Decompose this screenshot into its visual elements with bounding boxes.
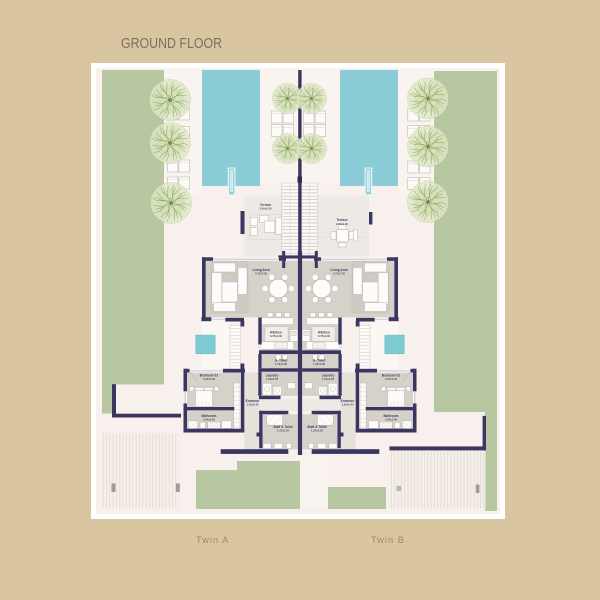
svg-text:Staff & Toilet: Staff & Toilet [273, 425, 293, 429]
svg-text:Staff & Toilet: Staff & Toilet [307, 425, 327, 429]
svg-text:G. Toilet: G. Toilet [275, 358, 288, 362]
svg-text:Laundry: Laundry [266, 373, 279, 377]
svg-text:Kitchen: Kitchen [270, 330, 282, 334]
svg-text:Bathroom: Bathroom [201, 414, 216, 418]
svg-text:1.20x2.55: 1.20x2.55 [311, 429, 323, 433]
svg-text:Bathroom: Bathroom [383, 414, 398, 418]
svg-text:GROUND FLOOR: GROUND FLOOR [121, 36, 222, 52]
svg-text:Laundry: Laundry [322, 373, 335, 377]
svg-text:Terrace: Terrace [336, 218, 348, 222]
svg-text:5.20x4.90: 5.20x4.90 [203, 377, 215, 381]
svg-text:G. Toilet: G. Toilet [313, 358, 326, 362]
svg-text:Kitchen: Kitchen [318, 330, 330, 334]
svg-text:Twin B: Twin B [371, 535, 405, 545]
svg-text:5.20x4.90: 5.20x4.90 [385, 377, 397, 381]
svg-text:Living Area: Living Area [252, 268, 269, 272]
svg-text:1.20x2.40: 1.20x2.40 [342, 403, 354, 407]
svg-text:1.20x2.55: 1.20x2.55 [277, 429, 289, 433]
svg-text:3.75x3.00: 3.75x3.00 [270, 334, 282, 338]
svg-text:Terrace: Terrace [260, 203, 272, 207]
svg-text:3.00x2.90: 3.00x2.90 [385, 418, 397, 422]
svg-text:Bedroom 01: Bedroom 01 [200, 373, 219, 377]
svg-text:4.75x7.50: 4.75x7.50 [255, 272, 267, 276]
svg-text:1.60x2.50: 1.60x2.50 [322, 377, 334, 381]
svg-text:2.60x4.30: 2.60x4.30 [336, 222, 348, 226]
svg-text:Bedroom 01: Bedroom 01 [382, 373, 401, 377]
svg-text:Entrance: Entrance [246, 399, 260, 403]
svg-text:3.00x2.90: 3.00x2.90 [203, 418, 215, 422]
svg-text:3.90x5.30: 3.90x5.30 [260, 207, 272, 211]
svg-text:Twin A: Twin A [196, 535, 229, 545]
svg-text:Living Area: Living Area [330, 268, 347, 272]
svg-text:1.20x2.40: 1.20x2.40 [247, 403, 259, 407]
svg-text:1.50x1.80: 1.50x1.80 [275, 362, 287, 366]
svg-text:1.50x1.80: 1.50x1.80 [313, 362, 325, 366]
svg-text:Entrance: Entrance [341, 399, 355, 403]
svg-text:1.60x2.50: 1.60x2.50 [266, 377, 278, 381]
svg-text:4.75x7.50: 4.75x7.50 [333, 272, 345, 276]
svg-text:3.75x3.00: 3.75x3.00 [318, 334, 330, 338]
